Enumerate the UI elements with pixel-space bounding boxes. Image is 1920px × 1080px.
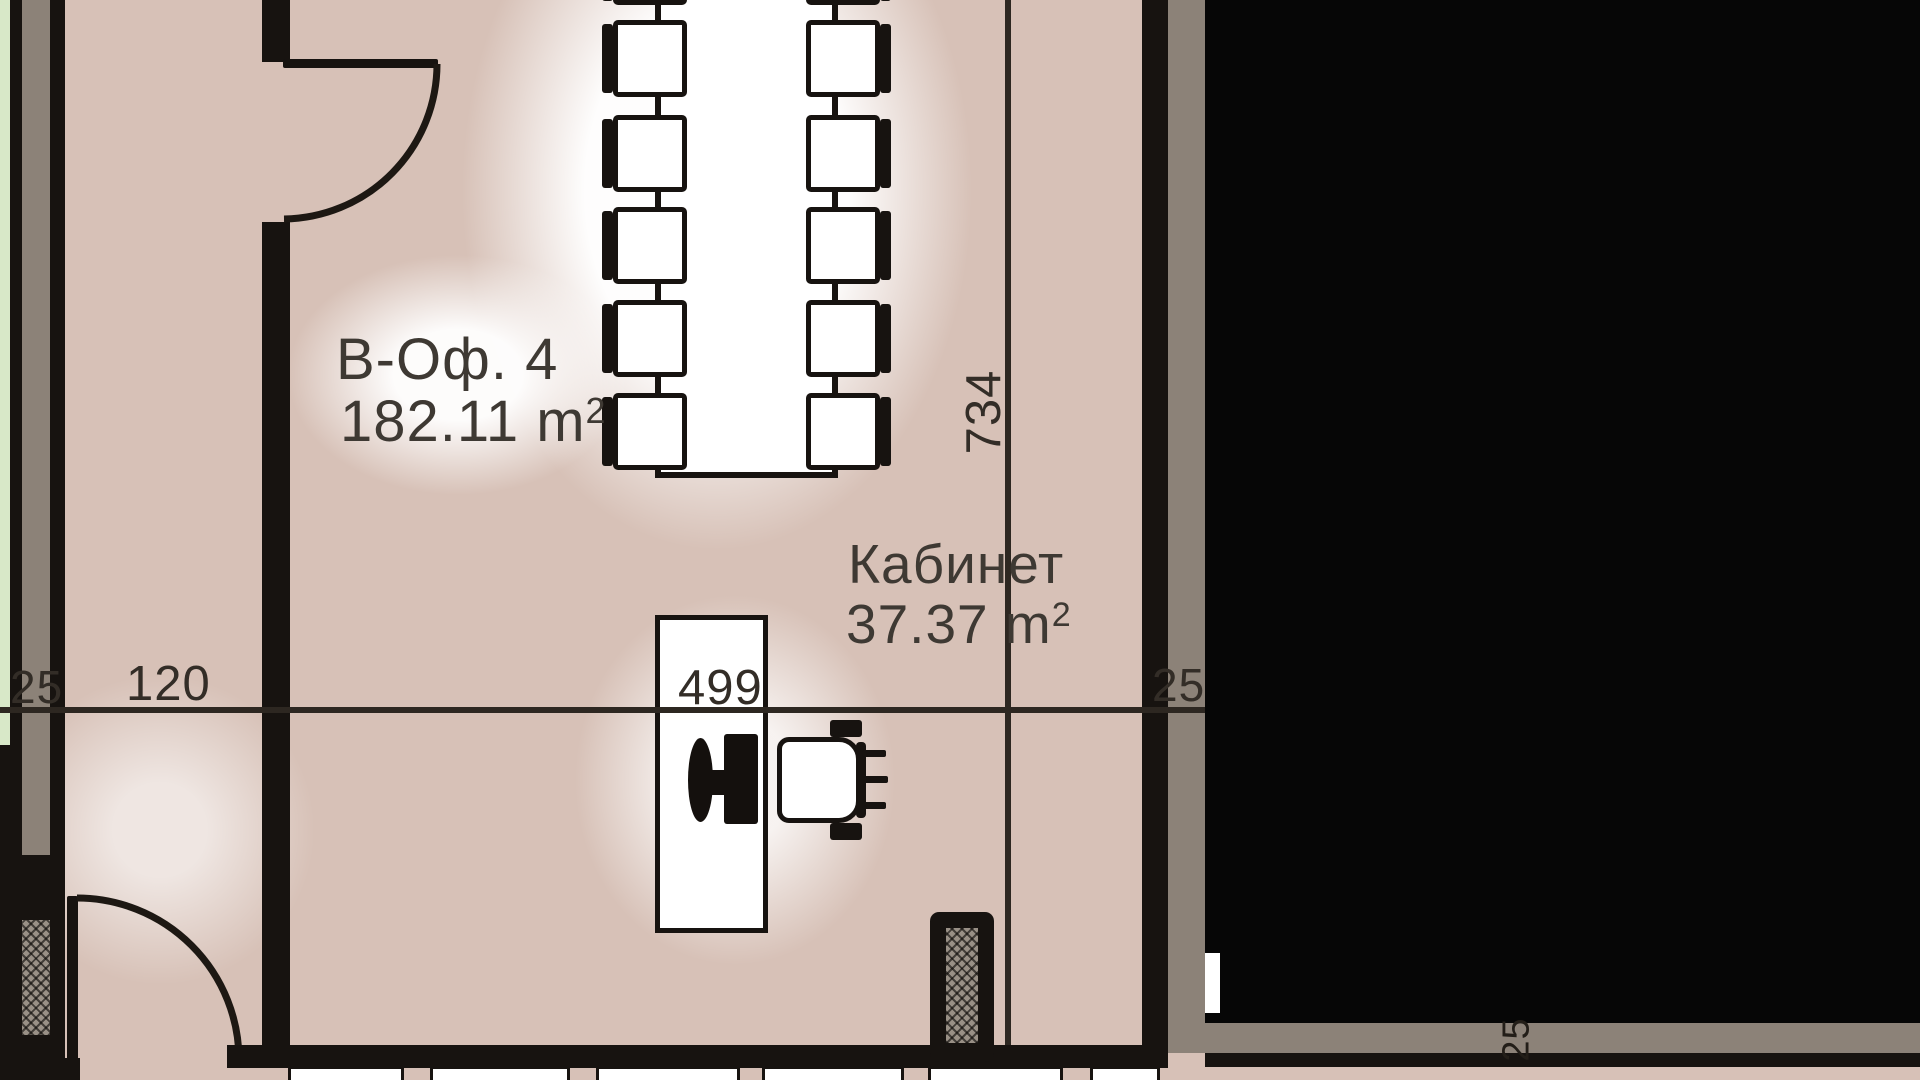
office-chair-caster	[864, 776, 888, 783]
window	[762, 1066, 904, 1080]
dim-room-depth: 734	[956, 356, 1012, 468]
room-name-office: В-Оф. 4	[336, 326, 558, 393]
mask-notch	[1205, 953, 1220, 1013]
left-hatched-shaft	[22, 920, 50, 1035]
window	[288, 1066, 404, 1080]
conference-chair	[806, 20, 880, 97]
room-area-office: 182.11 m2	[340, 388, 607, 455]
right-wall-cavity	[1168, 0, 1205, 1053]
room-area-office-value: 182.11 m	[340, 389, 586, 454]
office-chair-armrest	[830, 720, 862, 737]
bottom-right-wall-line	[1205, 1053, 1920, 1067]
conference-chair	[613, 207, 687, 284]
computer-tower-icon	[724, 734, 758, 824]
room-area-office-sup: 2	[586, 390, 607, 431]
conference-chair	[613, 0, 687, 5]
office-chair-armrest	[830, 823, 862, 840]
door-leaf-top	[283, 59, 438, 68]
door-swing-arc-bottom	[77, 898, 239, 1060]
conference-chair	[806, 393, 880, 470]
dim-wall-left: 25	[10, 660, 63, 714]
bottom-right-wall-cavity	[1168, 1023, 1920, 1053]
office-chair-seat	[777, 737, 861, 823]
masked-black-region	[1205, 0, 1920, 1023]
room-name-cabinet: Кабинет	[848, 532, 1064, 596]
adjacent-room-strip	[0, 0, 10, 745]
dim-desk-line: 499	[678, 660, 763, 716]
conference-chair	[806, 0, 880, 5]
conference-chair	[613, 300, 687, 377]
cabinet-boundary-line	[1005, 0, 1011, 1053]
left-wall-outer-line	[50, 0, 65, 1080]
door-leaf-bottom	[67, 896, 78, 1062]
room-area-cabinet-sup: 2	[1052, 596, 1072, 634]
left-wall-inner-line	[10, 0, 22, 745]
dim-wall-bottom-right: 25	[1496, 1005, 1539, 1075]
office-chair-caster	[862, 750, 886, 757]
conference-chair	[806, 207, 880, 284]
conference-chair	[613, 115, 687, 192]
room-area-cabinet-value: 37.37 m	[846, 593, 1052, 655]
shaft-hatch-core	[946, 928, 978, 1043]
left-shaft-cap-top	[22, 855, 50, 920]
partition-wall-stub	[262, 0, 290, 62]
conference-chair	[613, 20, 687, 97]
window	[928, 1066, 1063, 1080]
bottom-wall	[227, 1045, 1168, 1068]
right-wall-line	[1142, 0, 1168, 1068]
window	[430, 1066, 570, 1080]
window	[596, 1066, 740, 1080]
left-bottom-wall-block	[0, 745, 22, 1080]
room-area-cabinet: 37.37 m2	[846, 592, 1072, 656]
partition-wall	[262, 222, 290, 1068]
conference-chair	[806, 300, 880, 377]
floor-plan-canvas: 25 120 499 25 734 25 В-Оф. 4 182.11 m2 К…	[0, 0, 1920, 1080]
conference-chair	[806, 115, 880, 192]
dim-corridor-width: 120	[126, 656, 211, 712]
conference-chair	[613, 393, 687, 470]
left-shaft-cap-bottom	[22, 1035, 50, 1080]
dim-wall-right: 25	[1152, 658, 1205, 712]
door-hinge-block	[52, 1058, 80, 1080]
window	[1090, 1066, 1160, 1080]
office-chair-caster	[862, 802, 886, 809]
door-swing-arc-top	[284, 64, 437, 219]
